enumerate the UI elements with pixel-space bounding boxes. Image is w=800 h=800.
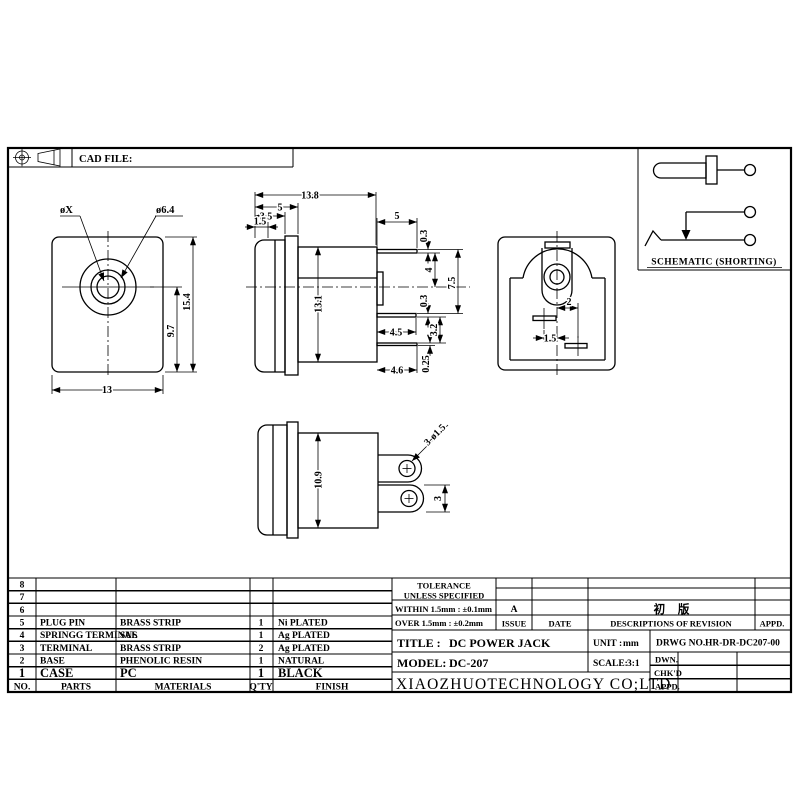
tolerance-within: WITHIN 1.5mm : ±0.1mm xyxy=(395,604,492,614)
schematic-diagram xyxy=(645,156,756,246)
row-no: 7 xyxy=(20,593,25,603)
dim-bottom-body-height: 10.9 xyxy=(314,471,325,489)
dim-mid-thickness: 0.3 xyxy=(419,295,430,308)
side-mid-terminal xyxy=(377,314,416,318)
plug-pin-symbol xyxy=(654,163,706,178)
side-bottom-terminal xyxy=(377,343,417,346)
row-no: 3 xyxy=(20,644,25,654)
plug-pin-collar xyxy=(706,156,717,184)
revision-appd-label: APPD. xyxy=(760,619,785,629)
side-flange xyxy=(285,236,298,375)
switch-arrow xyxy=(682,230,691,240)
row-finish: Ag PLATED xyxy=(278,631,330,641)
bottom-flange xyxy=(287,422,298,538)
cad-file-label: CAD FILE: xyxy=(79,154,132,165)
dim-front-height: 15.4 xyxy=(182,293,193,311)
dim-front-width: 13 xyxy=(102,385,112,396)
dim-pin-to-center: 4 xyxy=(424,268,435,273)
table-row: 6 xyxy=(20,606,25,616)
schematic-box: SCHEMATIC (SHORTING) xyxy=(638,148,791,270)
schematic-label: SCHEMATIC (SHORTING) xyxy=(651,257,776,268)
row-part: CASE xyxy=(40,666,73,680)
header-materials: MATERIALS xyxy=(155,683,212,693)
issue-value: A xyxy=(511,605,518,615)
drwg-no-label: DRWG NO.: xyxy=(656,639,708,649)
scale-label: SCALE: xyxy=(593,659,628,669)
front-dimension-lines xyxy=(52,237,197,394)
dim-terminal-width: 3 xyxy=(433,496,444,501)
issue-label: ISSUE xyxy=(502,619,527,629)
table-row: 5 PLUG PIN BRASS STRIP 1 Ni PLATED xyxy=(20,619,328,629)
table-row: 7 xyxy=(20,593,25,603)
row-finish: BLACK xyxy=(278,666,323,680)
dim-pin-thickness: 0.3 xyxy=(419,230,430,243)
title-value: DC POWER JACK xyxy=(449,636,551,650)
cad-file-box: CAD FILE: xyxy=(8,148,293,167)
dim-bottom-thickness: 0.25 xyxy=(421,355,432,373)
row-qty: 2 xyxy=(259,644,264,654)
terminal-2-node xyxy=(745,207,756,218)
date-label: DATE xyxy=(549,619,572,629)
row-material: SUS xyxy=(120,631,137,641)
dim-total-length: 13.8 xyxy=(301,191,319,202)
header-finish: FINISH xyxy=(316,683,349,693)
row-material: PHENOLIC RESIN xyxy=(120,657,202,667)
dim-mid-length: 4.5 xyxy=(390,328,403,339)
row-qty: 1 xyxy=(258,666,264,680)
revision-entry: 初 版 xyxy=(654,602,695,616)
dwn-label: DWN. xyxy=(655,655,678,665)
rear-top-slot xyxy=(545,242,570,248)
dim-pin-diameter: øX xyxy=(60,205,73,216)
row-part: PLUG PIN xyxy=(40,619,85,629)
model-value: DC-207 xyxy=(449,656,488,670)
header-qty: Q'TY xyxy=(249,683,272,693)
row-part: BASE xyxy=(40,657,65,667)
row-no: 1 xyxy=(19,666,25,680)
row-qty: 1 xyxy=(259,619,264,629)
unit-label: UNIT : xyxy=(593,639,622,649)
rear-view: 2 1.5 xyxy=(498,231,615,376)
tolerance-over: OVER 1.5mm : ±0.2mm xyxy=(395,618,483,628)
projection-cone-icon xyxy=(38,149,60,166)
side-dimension-lines xyxy=(245,192,463,373)
row-material: BRASS STRIP xyxy=(120,619,181,629)
row-finish: Ni PLATED xyxy=(278,619,328,629)
table-row: 3 TERMINAL BRASS STRIP 2 Ag PLATED xyxy=(20,644,330,654)
model-label: MODEL: xyxy=(397,656,446,670)
row-qty: 1 xyxy=(259,657,264,667)
header-no: NO. xyxy=(14,683,31,693)
side-pin-base xyxy=(377,272,383,305)
terminal-1-node xyxy=(745,165,756,176)
row-no: 6 xyxy=(20,606,25,616)
dim-pin-span: 7.5 xyxy=(447,277,458,290)
row-finish: NATURAL xyxy=(278,657,324,667)
dim-len15: 1.5 xyxy=(254,217,267,228)
tolerance-subtitle: UNLESS SPECIFIED xyxy=(404,591,485,601)
side-barrel-outline xyxy=(255,240,285,372)
row-qty: 1 xyxy=(259,631,264,641)
side-view: 13.8 5 3.5 1.5 5 0.3 4 7.5 0.3 3.2 4.5 4… xyxy=(245,191,470,377)
dim-pin-length: 5 xyxy=(395,211,400,222)
dim-slot-left: 1.5 xyxy=(544,334,557,345)
dim-body-height: 13.1 xyxy=(314,295,325,313)
tolerance-title: TOLERANCE xyxy=(417,581,471,591)
bottom-view: 10.9 3-ø1.5 3 xyxy=(258,422,450,538)
row-no: 2 xyxy=(20,657,25,667)
table-row: 1 CASE PC 1 BLACK xyxy=(19,666,323,680)
company-name: XIAOZHUOTECHNOLOGY CO;LTD xyxy=(396,676,672,693)
dim-barrel-diameter: ø6.4 xyxy=(156,205,175,216)
title-label: TITLE : xyxy=(397,636,441,650)
scale-value: 3:1 xyxy=(627,659,640,669)
dim-center-to-bottom: 9.7 xyxy=(166,325,177,338)
spring-contact-symbol xyxy=(645,231,661,246)
dim-len5: 5 xyxy=(278,203,283,214)
dim-terminal-gap: 3.2 xyxy=(429,324,440,337)
row-no: 4 xyxy=(20,631,25,641)
row-no: 8 xyxy=(20,581,25,591)
drwg-no-value: HR-DR-DC207-00 xyxy=(705,639,780,649)
side-top-terminal xyxy=(377,250,417,254)
rear-slots xyxy=(533,308,587,356)
dim-bottom-length: 4.6 xyxy=(391,366,404,377)
front-view: øX ø6.4 15.4 9.7 13 xyxy=(52,205,197,396)
front-leaders xyxy=(60,216,183,281)
dim-slot-right: 2 xyxy=(567,297,572,308)
side-body xyxy=(298,247,377,362)
terminal-3-node xyxy=(745,235,756,246)
row-no: 5 xyxy=(20,619,25,629)
drawing-sheet: CAD FILE: SCHEMATIC (SHORTING) xyxy=(0,0,800,800)
header-parts: PARTS xyxy=(61,683,91,693)
bottom-body xyxy=(298,433,378,528)
drawing-canvas: CAD FILE: SCHEMATIC (SHORTING) xyxy=(0,0,800,800)
revision-descriptions-label: DESCRIPTIONS OF REVISION xyxy=(610,619,732,629)
table-row: 4 SPRINGG TERMINAL SUS 1 Ag PLATED xyxy=(20,631,330,641)
row-material: PC xyxy=(120,666,137,680)
table-row: 2 BASE PHENOLIC RESIN 1 NATURAL xyxy=(20,657,325,667)
table-row: 8 xyxy=(20,581,25,591)
title-block: TOLERANCE UNLESS SPECIFIED WITHIN 1.5mm … xyxy=(392,578,791,693)
dim-terminal-holes: 3-ø1.5 xyxy=(422,422,448,448)
row-material: BRASS STRIP xyxy=(120,644,181,654)
row-part: TERMINAL xyxy=(40,644,92,654)
rear-outline xyxy=(498,237,615,370)
unit-value: mm xyxy=(623,639,639,649)
row-finish: Ag PLATED xyxy=(278,644,330,654)
target-crosshair-icon xyxy=(13,149,31,166)
